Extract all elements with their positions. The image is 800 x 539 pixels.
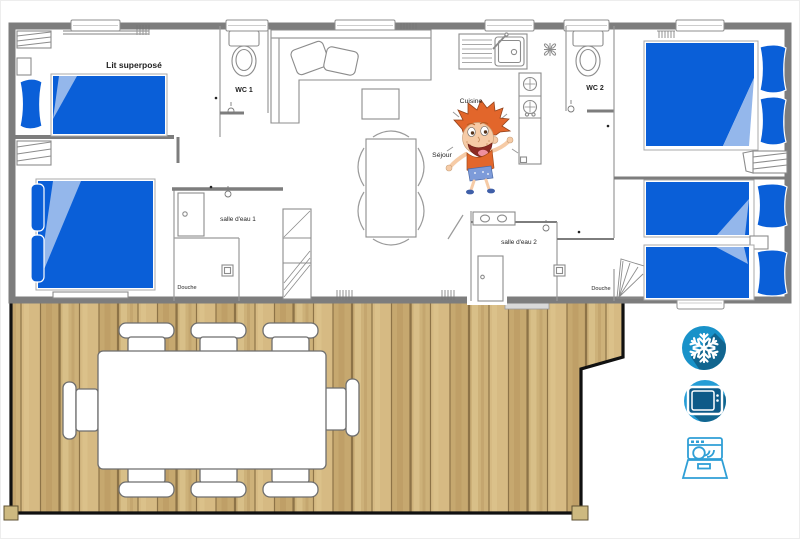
pillow: [757, 184, 787, 228]
pillow: [31, 184, 44, 231]
room-label-bathroom1: salle d'eau 1: [220, 216, 256, 223]
coffee-table: [362, 89, 399, 119]
pillow: [20, 79, 42, 129]
room-label-bathroom2: salle d'eau 2: [501, 239, 537, 246]
room-label-wc2: WC 2: [586, 85, 604, 92]
vanity-double-sink: [473, 212, 515, 225]
toilet: [229, 31, 259, 76]
shower-cabin: [178, 193, 204, 236]
deck-post-left: [4, 506, 18, 520]
floorplan-svg: Lit superposé WC 1: [1, 1, 800, 539]
shorts: [468, 166, 493, 181]
tv-icon: [684, 380, 726, 422]
snowflake-icon: [682, 326, 726, 372]
room-label-shower2: Douche: [591, 286, 610, 292]
pillow: [760, 45, 786, 93]
toilet: [573, 31, 603, 76]
room-label-kitchen: Cuisine: [460, 98, 483, 105]
wardrobe: [743, 151, 787, 173]
garden-chair: [324, 379, 359, 436]
room-label-shower1: Douche: [177, 285, 196, 291]
deck-post-right: [572, 506, 588, 520]
room-label-bunk-bedroom: Lit superposé: [106, 60, 162, 70]
floorplan-image: Lit superposé WC 1: [0, 0, 800, 539]
stove-counter: [519, 73, 541, 164]
amenity-icons: [682, 326, 727, 478]
double-bed: [31, 179, 155, 290]
pillow: [760, 97, 786, 145]
pillow: [757, 250, 787, 296]
garden-table: [98, 351, 326, 469]
shoe: [487, 189, 495, 194]
vent-box: [554, 265, 565, 276]
dining-table: [358, 131, 424, 245]
wardrobe-column: [283, 209, 311, 299]
vent-box: [222, 265, 233, 276]
dishwasher-icon: [683, 438, 727, 478]
garden-chair: [63, 382, 98, 439]
wardrobe: [17, 141, 51, 165]
room-label-wc1: WC 1: [235, 87, 253, 94]
room-label-living: Séjour: [432, 152, 452, 159]
pillow: [31, 235, 44, 282]
kitchen-sink-unit: [459, 33, 527, 69]
shoe: [466, 190, 474, 195]
door-leaf: [478, 256, 503, 301]
bench: [53, 292, 128, 298]
